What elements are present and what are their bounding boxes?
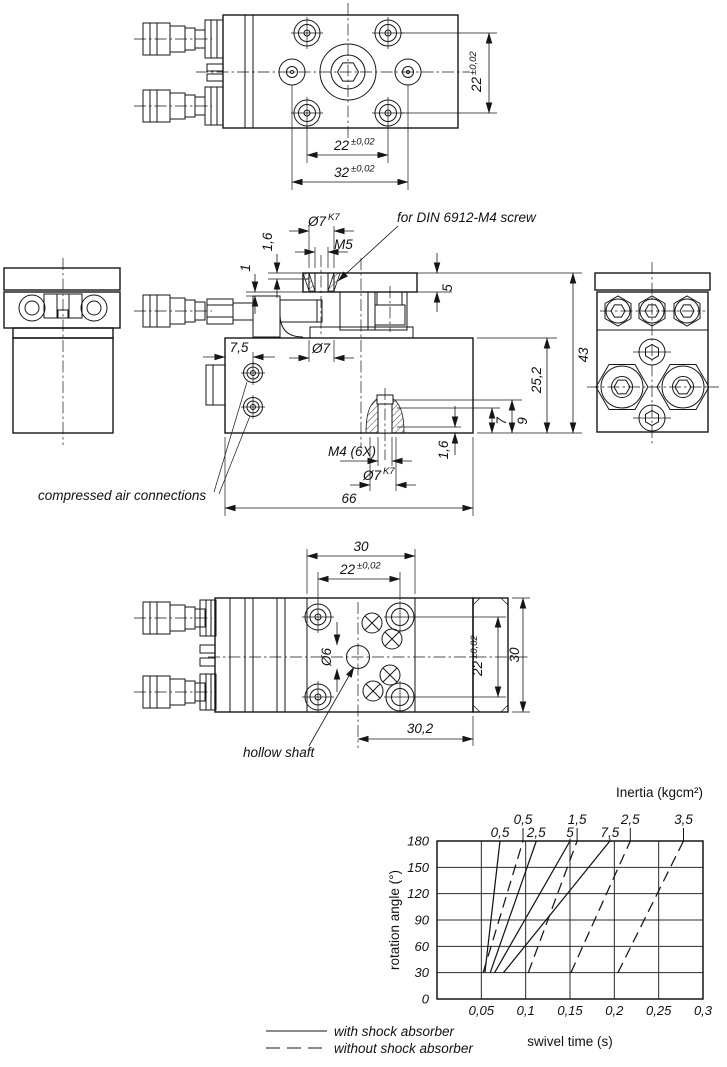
front-view: Ø7 K7 M5 1,6 1 7,5	[38, 210, 591, 516]
x-tick-label: 0,1	[517, 1003, 535, 1018]
x-tick-label: 0,2	[605, 1003, 624, 1018]
dim-text: 5	[440, 284, 455, 292]
series-label: 7,5	[601, 825, 620, 840]
dim-tolerance: ±0,02	[351, 137, 375, 148]
base-plate	[310, 327, 413, 338]
dim-tolerance: ±0,02	[468, 51, 479, 75]
dim-text: 30,2	[407, 721, 434, 736]
legend-dashed-label: without shock absorber	[334, 1041, 473, 1056]
body-outline	[225, 338, 473, 433]
dim-tolerance: ±0,02	[351, 164, 375, 175]
y-tick-label: 0	[422, 992, 430, 1007]
body-outline	[223, 15, 458, 128]
dim-text: 30	[353, 539, 369, 554]
fitting-nut	[205, 87, 223, 125]
y-tick-label: 90	[415, 913, 430, 928]
dim-text: 7	[494, 417, 509, 425]
series-line-solid-5	[495, 841, 570, 973]
dim-tolerance: ±0,02	[469, 635, 480, 659]
dim-text: Ø7	[362, 468, 382, 483]
y-tick-label: 120	[407, 886, 429, 901]
dim-22-pitch: 22 ±0,02	[307, 126, 388, 163]
series-label: 3,5	[674, 812, 693, 827]
dim-text: Ø7	[307, 214, 327, 229]
chart: Inertia (kgcm²) 0,52,557,50,51,52,53,5 0…	[387, 785, 713, 1049]
dim-22-side: 22 ±0,02	[401, 33, 497, 113]
dim-text: 1	[238, 264, 253, 272]
series-line-solid-7,5	[504, 841, 610, 973]
dim-fit: K7	[328, 212, 340, 223]
dim-text: 66	[341, 491, 357, 506]
dim-text: 7,5	[230, 340, 249, 355]
note-text: hollow shaft	[243, 745, 316, 760]
x-tick-label: 0,15	[557, 1003, 583, 1018]
dim-text: 9	[515, 417, 530, 425]
x-tick-label: 0,25	[646, 1003, 672, 1018]
mounting-holes	[279, 17, 421, 129]
series-label: 2,5	[620, 812, 640, 827]
dim-thread-top: M5	[295, 237, 353, 268]
legend-solid-label: with shock absorber	[334, 1024, 455, 1039]
top-view: 22 ±0,02 22 ±0,02 32 ±0,02	[134, 3, 497, 190]
dim-text: 22	[470, 660, 485, 677]
note-air-connections: compressed air connections	[38, 382, 250, 503]
note-text: compressed air connections	[38, 488, 206, 503]
countersink-hatch	[328, 273, 340, 291]
dim-text: 22	[469, 76, 484, 93]
countersink-hatch	[303, 273, 315, 291]
dim-text: 1,6	[436, 440, 451, 459]
series-line-dashed-2,5	[571, 841, 630, 973]
series-label: 0,5	[491, 825, 510, 840]
dim-tolerance: ±0,02	[357, 561, 381, 572]
series-label: 1,5	[568, 812, 587, 827]
dim-text: 30	[507, 647, 522, 663]
chart-grid	[437, 841, 703, 999]
dim-text: 22	[339, 562, 356, 577]
mounting-plate	[303, 273, 417, 292]
dim-pitch-top: 22 ±0,02	[318, 561, 400, 603]
bottom-view: 30 22 ±0,02 Ø6 22 ±0,02 30	[134, 539, 530, 760]
x-tick-label: 0,05	[469, 1003, 495, 1018]
y-tick-label: 150	[407, 860, 429, 875]
body-outline	[215, 598, 473, 712]
dim-text: 22	[333, 138, 350, 153]
y-tick-label: 30	[415, 965, 430, 980]
dim-port-offset: 7,5	[203, 340, 275, 366]
chart-tick-labels: 0,050,10,150,20,250,30306090120150180	[407, 834, 713, 1019]
dim-plate-thickness: 5	[417, 253, 582, 312]
series-line-dashed-0,5	[483, 841, 523, 973]
left-side-view	[4, 258, 120, 445]
dim-offset: 30,2	[358, 716, 473, 746]
right-side-view	[587, 262, 719, 444]
bracket	[253, 296, 280, 337]
x-axis-label: swivel time (s)	[527, 1034, 613, 1049]
dim-screw-depth: 7	[397, 408, 509, 433]
series-line-dashed-3,5	[618, 841, 684, 973]
y-axis-label: rotation angle (°)	[387, 870, 402, 970]
dim-text: 32	[334, 165, 350, 180]
note-text: for DIN 6912-M4 screw	[397, 210, 537, 225]
technical-drawing-page: 22 ±0,02 22 ±0,02 32 ±0,02	[0, 0, 727, 1067]
dim-text: M5	[334, 237, 353, 252]
y-tick-label: 180	[407, 834, 429, 849]
series-label: 2,5	[526, 825, 546, 840]
actuator-block	[340, 292, 407, 330]
dim-text: Ø6	[319, 648, 334, 668]
fitting-nut	[205, 20, 223, 58]
series-label: 0,5	[514, 812, 533, 827]
dim-text: Ø7	[311, 341, 331, 356]
note-din-screw: for DIN 6912-M4 screw	[338, 210, 537, 281]
clamp-shaft	[280, 300, 322, 322]
dim-text: 43	[576, 347, 591, 363]
dim-total-height: 43	[477, 273, 591, 433]
chart-series: 0,52,557,50,51,52,53,5	[483, 812, 693, 973]
x-tick-label: 0,3	[694, 1003, 713, 1018]
chart-title: Inertia (kgcm²)	[616, 785, 703, 800]
y-tick-label: 60	[415, 939, 430, 954]
chart-legend: with shock absorber without shock absorb…	[266, 1024, 473, 1056]
dim-text: 1,6	[260, 232, 275, 251]
series-label: 5	[566, 825, 574, 840]
technical-drawing: 22 ±0,02 22 ±0,02 32 ±0,02	[0, 0, 727, 1067]
side-port-boss	[206, 365, 225, 405]
dim-gap: 1	[238, 264, 303, 314]
dim-module-height: 30	[507, 598, 530, 712]
dim-bore-mid: Ø7	[289, 340, 354, 362]
dim-text: M4 (6X)	[328, 444, 376, 459]
dim-fit: K7	[383, 466, 395, 477]
dim-boss-height: 9	[393, 400, 530, 433]
dim-text: 25,2	[529, 366, 544, 394]
dim-depth-top: 1,6	[260, 232, 309, 298]
bracket-fillet	[280, 314, 303, 337]
